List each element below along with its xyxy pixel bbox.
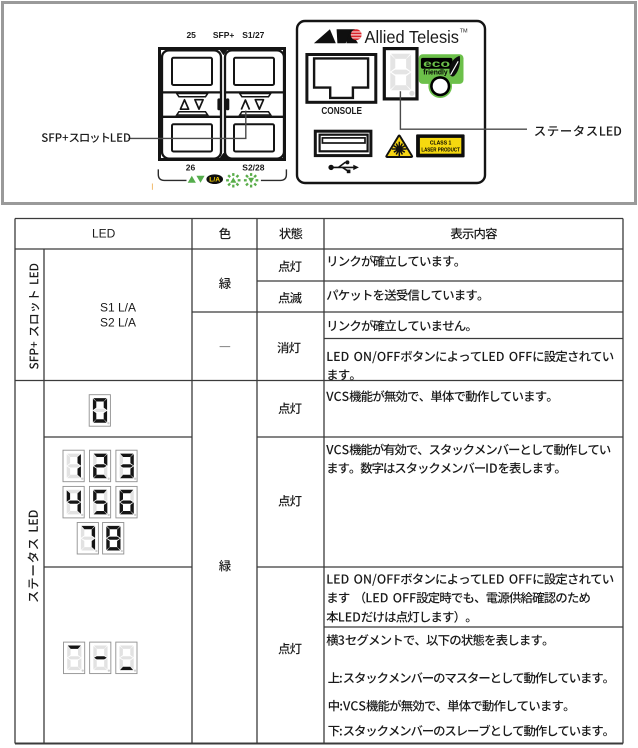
svg-text:Allied Telesis: Allied Telesis — [365, 27, 460, 47]
svg-text:SFP+: SFP+ — [213, 30, 235, 40]
svg-text:S2/28: S2/28 — [242, 162, 264, 172]
svg-text:friendly: friendly — [423, 70, 448, 77]
svg-text:S1/27: S1/27 — [242, 30, 264, 40]
svg-text:25: 25 — [186, 30, 196, 40]
svg-text:TM: TM — [460, 29, 468, 35]
svg-text:LASER PRODUCT: LASER PRODUCT — [421, 148, 460, 154]
svg-text:eco: eco — [423, 59, 450, 70]
svg-text:CLASS 1: CLASS 1 — [430, 141, 452, 147]
svg-text:26: 26 — [186, 162, 196, 172]
svg-text:CONSOLE: CONSOLE — [321, 106, 362, 117]
svg-text:L/A: L/A — [209, 177, 220, 184]
svg-text:LED: LED — [92, 227, 116, 241]
svg-text:S2 L/A: S2 L/A — [100, 315, 136, 329]
svg-text:S1 L/A: S1 L/A — [100, 301, 136, 315]
